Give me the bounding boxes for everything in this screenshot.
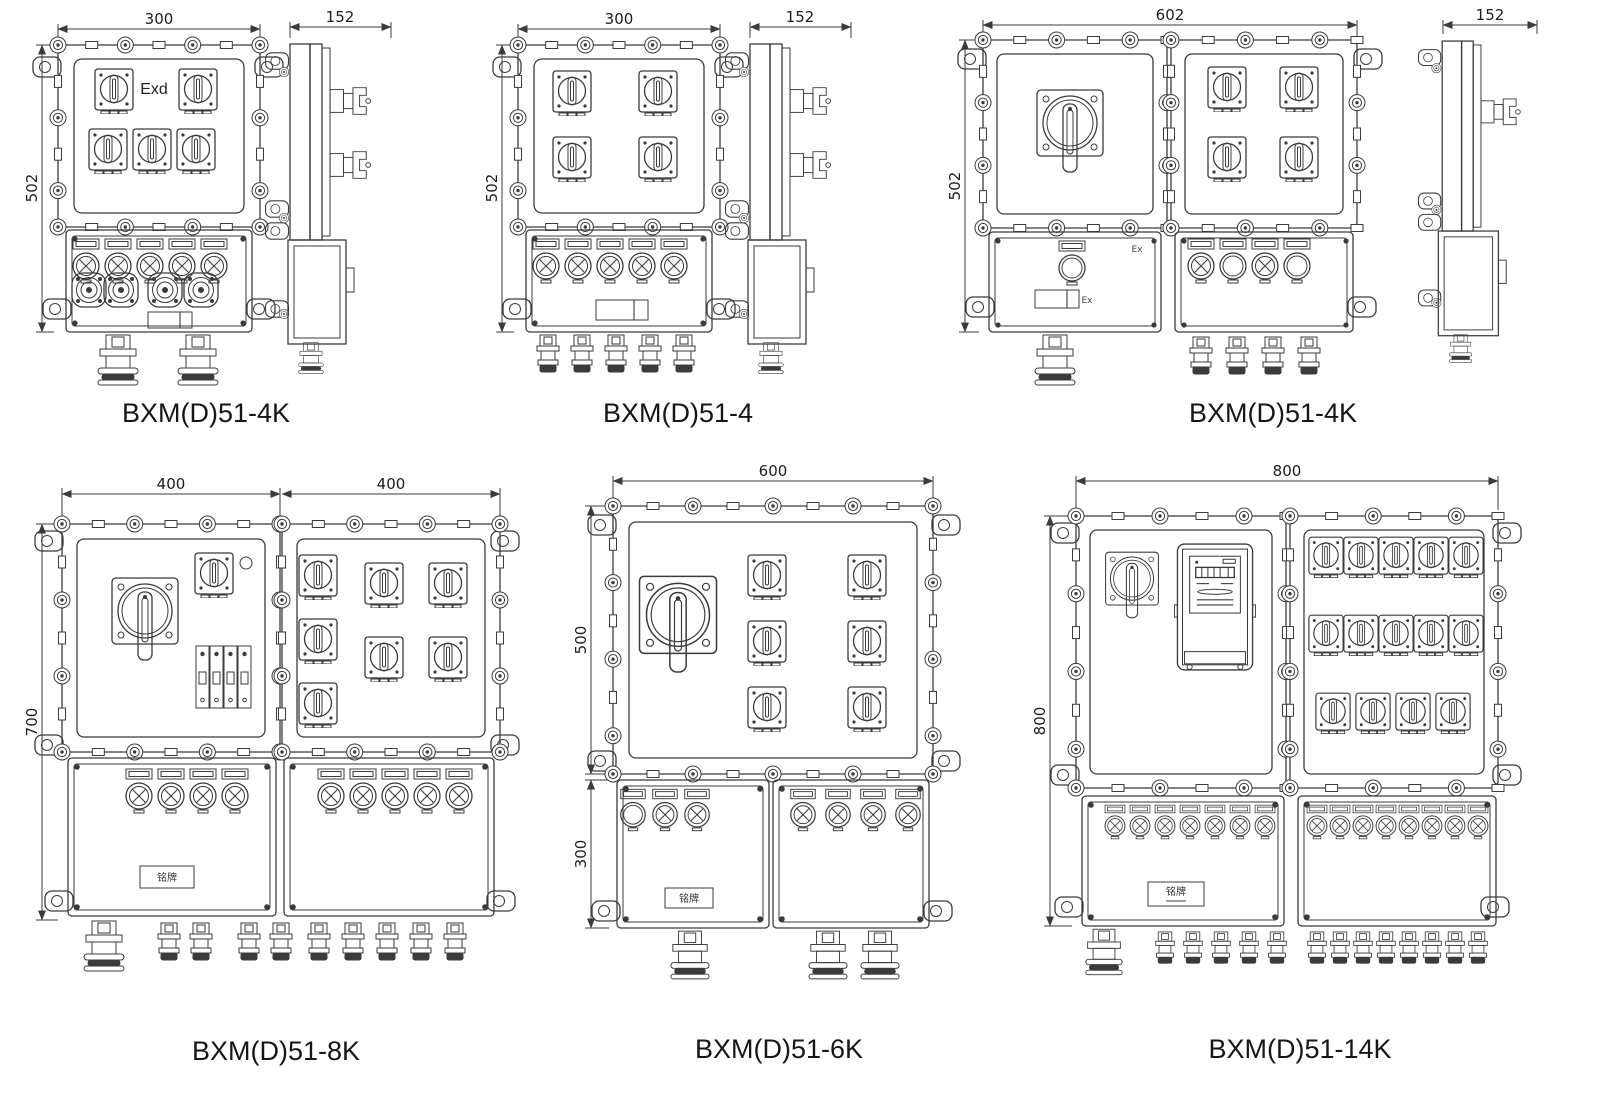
flange-bolts <box>54 516 288 760</box>
energy-meter <box>1174 544 1255 670</box>
mounting-lug <box>932 515 960 535</box>
rotary-switch <box>1356 693 1390 734</box>
dim-height-label: 502 <box>23 174 41 203</box>
cable-gland <box>1446 932 1465 963</box>
rotary-switch <box>553 71 591 116</box>
rotary-switch <box>748 687 786 732</box>
indicator-lamp <box>1188 239 1214 283</box>
enclosure-side <box>726 44 831 373</box>
mounting-lug <box>1055 897 1083 917</box>
cable-gland <box>537 335 559 372</box>
side-view: 152 <box>266 8 391 373</box>
cable-gland <box>1184 932 1203 963</box>
indicator-lamp <box>629 239 655 283</box>
cable-gland <box>178 335 218 385</box>
cable-gland <box>671 931 709 979</box>
mounting-lug <box>491 531 519 551</box>
dim-width-label: 800 <box>1273 462 1302 480</box>
rotary-switch <box>1309 615 1343 656</box>
indicator-lamp <box>1445 805 1465 839</box>
dimension-width-left: 400 <box>62 475 280 520</box>
rotary-switch <box>1449 537 1483 578</box>
dimension-width-right: 400 <box>282 475 500 520</box>
rotary-switch <box>429 563 467 608</box>
cable-gland <box>1423 932 1442 963</box>
figure-bxmd51-14k: 800 800 <box>1018 458 1613 1098</box>
nameplate-text: 铭牌 <box>1166 885 1186 898</box>
indicator-lamp <box>201 239 227 283</box>
rotary-switch <box>848 621 886 666</box>
front-view: 铭牌 <box>35 516 519 971</box>
indicator-lamp <box>190 769 216 813</box>
indicator-lamp <box>896 789 920 830</box>
indicator-lamp <box>1130 805 1150 839</box>
indicator-lamp <box>861 789 885 830</box>
switch-chamber <box>613 506 933 774</box>
cable-gland <box>1268 932 1287 963</box>
mounting-lug <box>1051 523 1079 543</box>
indicator-lamp <box>1399 805 1419 839</box>
dim-height-upper-label: 500 <box>572 626 590 655</box>
cable-gland <box>1298 337 1320 374</box>
model-label: BXM(D)51-8K <box>192 1036 360 1066</box>
dim-depth-label: 152 <box>1476 8 1505 24</box>
indicator-lamp <box>382 769 408 813</box>
indicator-lamp <box>1105 805 1125 839</box>
nameplate <box>596 300 648 320</box>
cable-gland <box>1262 337 1284 374</box>
indicator-lamp <box>126 769 152 813</box>
indicator-lamp <box>685 789 709 830</box>
dimension-depth: 152 <box>750 8 851 38</box>
circuit-breaker-4p <box>196 646 251 708</box>
rotary-switch <box>179 69 217 114</box>
indicator-lamp <box>137 239 163 283</box>
dim-depth-label: 152 <box>786 8 815 26</box>
main-switch-chamber <box>983 40 1167 228</box>
cable-gland <box>571 335 593 372</box>
main-switch <box>112 578 178 660</box>
rotary-switch <box>177 129 215 174</box>
dim-height-label: 502 <box>483 174 501 203</box>
mounting-lug <box>592 901 620 921</box>
meter-chamber <box>1076 516 1286 788</box>
mounting-lug <box>924 901 952 921</box>
rotary-switch <box>553 137 591 182</box>
side-view: 152 <box>726 8 851 373</box>
mounting-lug <box>33 57 61 77</box>
mounting-lug <box>493 57 521 77</box>
rotary-switch <box>1414 537 1448 578</box>
dim-width-left-label: 400 <box>157 475 186 493</box>
cable-gland <box>190 923 212 960</box>
exd-marking: Exd <box>140 81 168 98</box>
rotary-switch <box>748 621 786 666</box>
switch-chamber <box>58 45 260 227</box>
indicator-lamp <box>1230 805 1250 839</box>
dim-width-label: 300 <box>605 10 634 28</box>
front-view: 铭牌 <box>1051 508 1521 975</box>
figure-bxmd51-8k: 400 400 700 <box>18 468 543 1096</box>
flange-bolts <box>1163 32 1365 236</box>
push-button <box>1220 239 1246 283</box>
indicator-lamp <box>73 239 99 283</box>
indicator-lamp <box>105 239 131 283</box>
indicator-lamp <box>1353 805 1373 839</box>
rotary-switch <box>89 129 127 174</box>
rotary-switch <box>1280 137 1318 182</box>
cable-gland <box>639 335 661 372</box>
indicator-lamp <box>1330 805 1350 839</box>
front-view: 铭牌 <box>588 498 960 979</box>
cable-gland <box>84 921 124 971</box>
main-switch-chamber <box>62 524 280 752</box>
rotary-switch <box>1316 693 1350 734</box>
cable-gland <box>238 923 260 960</box>
rotary-switch <box>299 619 337 664</box>
dim-height-lower-label: 300 <box>572 840 590 869</box>
mounting-lug <box>503 299 531 319</box>
dim-width-label: 602 <box>1156 8 1185 24</box>
enclosure-side <box>266 44 371 373</box>
mounting-lug <box>1493 523 1521 543</box>
cable-gland <box>1156 932 1175 963</box>
figure-bxmd51-4k-2: 602 502 Ex Ex <box>935 8 1613 440</box>
mounting-lug <box>43 299 71 319</box>
mounting-lug <box>966 297 994 317</box>
model-label: BXM(D)51-4K <box>122 398 290 428</box>
indicator-lamp <box>222 769 248 813</box>
nameplate-text: 铭牌 <box>157 871 177 884</box>
enclosure-side <box>1418 41 1520 362</box>
mounting-lug <box>35 531 63 551</box>
branch-switch-chamber <box>282 524 500 752</box>
indicator-lamp <box>1205 805 1225 839</box>
mounting-lug <box>1348 297 1376 317</box>
model-label: BXM(D)51-4K <box>1189 398 1357 428</box>
flange-bolts <box>510 37 728 235</box>
cable-gland <box>444 923 466 960</box>
cable-gland <box>1308 932 1327 963</box>
rotary-switch <box>639 71 677 116</box>
dimension-depth: 152 <box>290 8 391 38</box>
push-button <box>621 789 645 830</box>
cable-gland <box>1226 337 1248 374</box>
pilot-hole <box>240 557 252 569</box>
indicator-lamp <box>1376 805 1396 839</box>
dimension-height: 700 <box>23 524 58 920</box>
rotary-switch <box>429 637 467 682</box>
cable-gland <box>605 335 627 372</box>
rotary-switch <box>1208 137 1246 182</box>
flange-bolts <box>50 37 268 235</box>
dimension-depth: 152 <box>1443 8 1537 34</box>
figure-bxmd51-6k: 600 500 300 铭牌 <box>565 458 990 1098</box>
cable-gland <box>809 931 847 979</box>
mounting-lug <box>1481 897 1509 917</box>
cable-gland <box>673 335 695 372</box>
nameplate <box>1035 290 1079 308</box>
rotary-switch <box>365 563 403 608</box>
rotary-switch <box>1379 615 1413 656</box>
front-view <box>493 37 743 372</box>
flange-bolts <box>1068 508 1294 796</box>
cable-gland <box>376 923 398 960</box>
indicator-lamp <box>565 239 591 283</box>
rotary-switch <box>1449 615 1483 656</box>
rotary-switch <box>748 555 786 600</box>
mounting-lug <box>255 57 283 77</box>
cable-gland <box>342 923 364 960</box>
indicator-lamp <box>791 789 815 830</box>
rotary-switch <box>1344 615 1378 656</box>
drawing-sheet: 300 502 Exd <box>0 0 1613 1102</box>
rotary-switch <box>133 129 171 174</box>
cable-gland <box>1400 932 1419 963</box>
main-switch <box>1037 90 1103 172</box>
rotary-switch <box>1309 537 1343 578</box>
cable-gland <box>1331 932 1350 963</box>
mounting-lug <box>588 515 616 535</box>
cable-gland <box>158 923 180 960</box>
cable-gland <box>410 923 432 960</box>
cable-gland <box>1469 932 1488 963</box>
dimension-height: 502 <box>23 45 54 332</box>
main-switch <box>1106 552 1159 618</box>
branch-switch-chamber <box>1171 40 1357 228</box>
lamp-compartment <box>68 758 276 916</box>
indicator-lamp <box>1255 805 1275 839</box>
dimension-width: 300 <box>58 10 260 42</box>
flange-bolts <box>605 498 941 782</box>
indicator-lamp <box>158 769 184 813</box>
rotary-switch <box>1396 693 1430 734</box>
cable-gland <box>861 931 899 979</box>
push-button <box>1284 239 1310 283</box>
indicator-lamp <box>318 769 344 813</box>
cable-gland <box>1240 932 1259 963</box>
dim-width-label: 600 <box>759 462 788 480</box>
dimension-height: 502 <box>946 40 979 332</box>
figure-bxmd51-4: 300 502 <box>478 8 923 440</box>
mounting-lug <box>715 57 743 77</box>
dim-depth-label: 152 <box>326 8 355 26</box>
socket <box>148 273 182 307</box>
indicator-lamp <box>826 789 850 830</box>
rotary-switch <box>1344 537 1378 578</box>
rotary-switch <box>848 555 886 600</box>
dimension-width: 300 <box>518 10 720 42</box>
indicator-lamp <box>533 239 559 283</box>
mounting-lug <box>1493 765 1521 785</box>
cable-gland <box>1190 337 1212 374</box>
indicator-lamp <box>414 769 440 813</box>
cable-gland <box>1086 929 1122 974</box>
rotary-switch <box>848 687 886 732</box>
main-switch <box>640 576 717 672</box>
dim-width-right-label: 400 <box>377 475 406 493</box>
dimension-width: 600 <box>613 462 933 502</box>
mounting-lug <box>487 891 515 911</box>
rotary-switch <box>299 683 337 728</box>
flange-bolts <box>975 32 1175 236</box>
push-button <box>1059 241 1085 285</box>
cable-gland <box>270 923 292 960</box>
dimension-width: 800 <box>1076 462 1498 510</box>
chamber-door <box>534 59 704 213</box>
nameplate-text: 铭牌 <box>679 892 699 905</box>
dimension-height-upper: 500 <box>572 506 609 774</box>
cable-gland <box>308 923 330 960</box>
switch-chamber <box>518 45 720 227</box>
model-label: BXM(D)51-14K <box>1208 1034 1391 1064</box>
cable-gland <box>1354 932 1373 963</box>
rotary-switch <box>195 553 233 598</box>
dim-width-label: 300 <box>145 10 174 28</box>
dim-height-label: 700 <box>23 708 41 737</box>
socket <box>184 273 218 307</box>
cable-gland <box>98 335 138 385</box>
dim-height-label: 800 <box>1031 707 1049 736</box>
indicator-lamp <box>1180 805 1200 839</box>
indicator-lamp <box>1307 805 1327 839</box>
dimension-height: 800 <box>1031 516 1072 926</box>
model-label: BXM(D)51-6K <box>695 1034 863 1064</box>
cable-gland <box>1377 932 1396 963</box>
cable-gland <box>1212 932 1231 963</box>
button-compartment <box>617 780 769 928</box>
rotary-switch <box>1208 67 1246 112</box>
lamp-compartment <box>1298 796 1496 926</box>
indicator-lamp <box>653 789 677 830</box>
rotary-switch <box>1436 693 1470 734</box>
indicator-lamp <box>1155 805 1175 839</box>
indicator-lamp <box>446 769 472 813</box>
dim-height-label: 502 <box>946 172 964 201</box>
ex-mark: Ex <box>1081 296 1093 306</box>
figure-bxmd51-4k-1: 300 502 Exd <box>18 8 463 440</box>
lamp-compartment <box>284 758 494 916</box>
rotary-switch <box>95 69 133 114</box>
indicator-lamp <box>169 239 195 283</box>
rotary-switch <box>1280 67 1318 112</box>
cable-gland <box>1035 335 1075 385</box>
indicator-lamp <box>1252 239 1278 283</box>
side-view: 152 <box>1418 8 1537 362</box>
indicator-lamp <box>1468 805 1488 839</box>
indicator-lamp <box>661 239 687 283</box>
rotary-switch <box>1379 537 1413 578</box>
indicator-lamp <box>1422 805 1442 839</box>
rotary-switch <box>365 637 403 682</box>
rotary-switch <box>639 137 677 182</box>
model-label: BXM(D)51-4 <box>603 398 753 428</box>
indicator-lamp <box>350 769 376 813</box>
front-view: Exd <box>33 37 283 385</box>
indicator-lamp <box>597 239 623 283</box>
rotary-switch <box>299 555 337 600</box>
rotary-switch <box>1414 615 1448 656</box>
ex-mark: Ex <box>1131 245 1143 255</box>
mounting-lug <box>45 891 73 911</box>
front-view: Ex Ex <box>958 32 1382 385</box>
dimension-height: 502 <box>483 45 514 332</box>
